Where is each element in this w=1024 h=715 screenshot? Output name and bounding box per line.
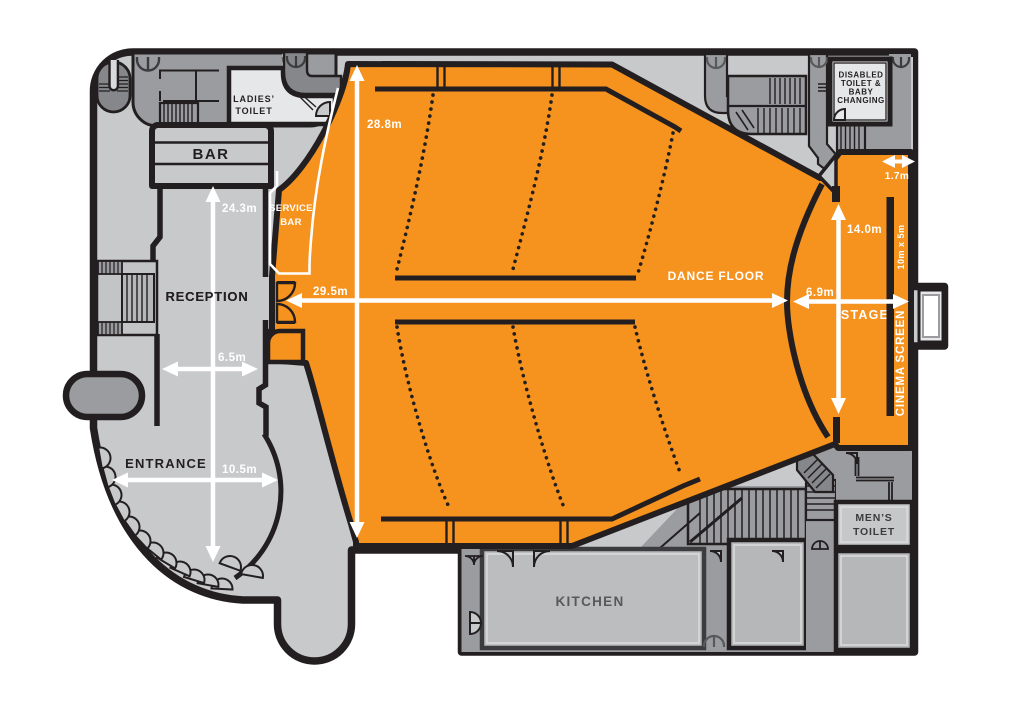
- svg-text:CHANGING: CHANGING: [837, 96, 885, 105]
- svg-text:6.9m: 6.9m: [806, 287, 834, 299]
- svg-text:29.5m: 29.5m: [313, 286, 348, 298]
- svg-text:BAR: BAR: [193, 146, 230, 163]
- svg-text:ENTRANCE: ENTRANCE: [125, 456, 207, 471]
- svg-text:RECEPTION: RECEPTION: [165, 289, 248, 304]
- svg-text:TOILET: TOILET: [853, 526, 895, 538]
- svg-text:KITCHEN: KITCHEN: [555, 594, 624, 609]
- svg-text:LADIES’: LADIES’: [233, 94, 275, 104]
- svg-text:1.7m: 1.7m: [885, 171, 909, 182]
- svg-text:14.0m: 14.0m: [847, 224, 882, 236]
- svg-text:10m x 5m: 10m x 5m: [896, 224, 906, 269]
- svg-text:SERVICE: SERVICE: [269, 203, 313, 214]
- svg-text:STAGE: STAGE: [841, 308, 889, 322]
- svg-text:28.8m: 28.8m: [367, 119, 402, 131]
- svg-text:6.5m: 6.5m: [218, 352, 246, 364]
- svg-text:TOILET: TOILET: [235, 106, 272, 116]
- svg-text:MEN’S: MEN’S: [855, 512, 892, 524]
- svg-text:10.5m: 10.5m: [222, 464, 257, 476]
- svg-text:24.3m: 24.3m: [222, 203, 257, 215]
- svg-text:BAR: BAR: [280, 217, 301, 228]
- svg-text:CINEMA SCREEN: CINEMA SCREEN: [895, 310, 907, 416]
- svg-text:DANCE FLOOR: DANCE FLOOR: [668, 269, 765, 283]
